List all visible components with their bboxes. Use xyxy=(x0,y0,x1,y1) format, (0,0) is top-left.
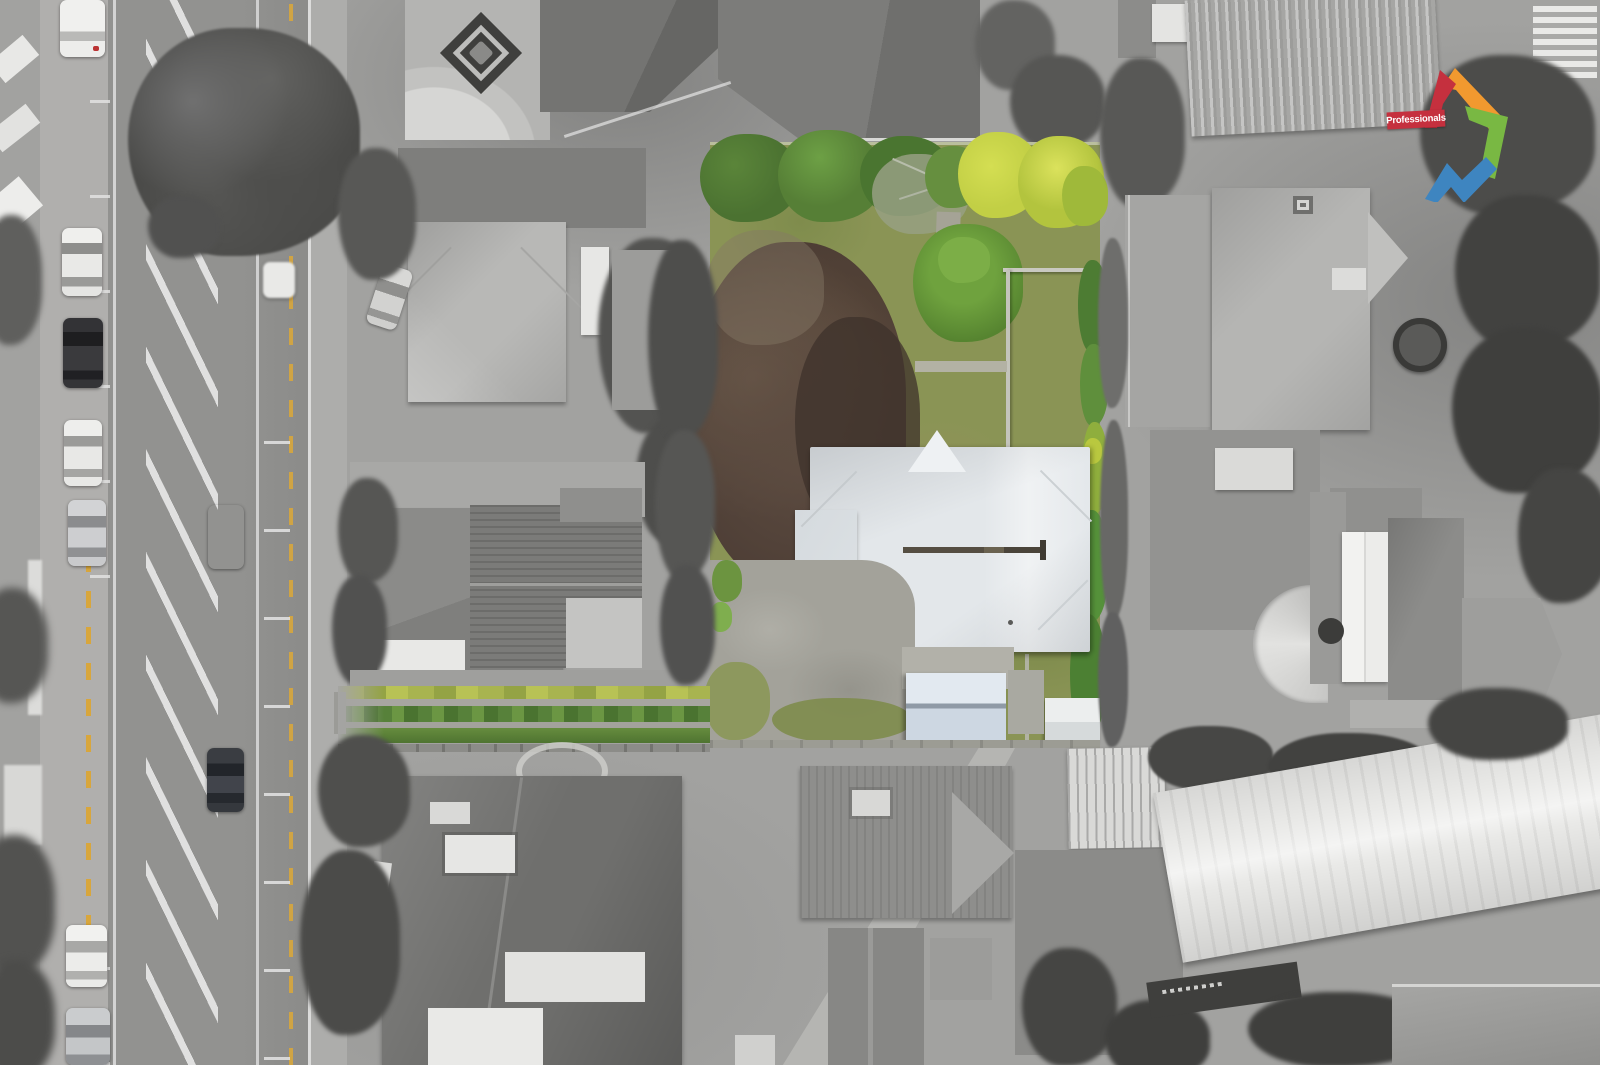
tree-mid-5 xyxy=(332,575,387,685)
shed-small-top xyxy=(1118,0,1156,58)
small-outbuilding-roof xyxy=(1045,698,1100,742)
patio-east xyxy=(1008,670,1044,734)
tree-east-3 xyxy=(1518,468,1600,603)
roof-vent-2 xyxy=(1008,620,1013,625)
trampoline xyxy=(1393,318,1447,372)
neighbor-house-f-roof-left xyxy=(1310,492,1346,684)
fence-east-front xyxy=(1128,195,1130,427)
s-roof2-ridge xyxy=(868,928,873,1065)
tree-east-top-2 xyxy=(1100,58,1185,208)
f-white-gable xyxy=(1342,532,1388,682)
concrete-path xyxy=(915,361,1007,372)
neighbor-house-e-roof xyxy=(1212,188,1370,430)
tree-south-1 xyxy=(318,735,410,847)
neighbor-house-west-ridge xyxy=(470,583,642,586)
parked-car-5 xyxy=(68,500,106,566)
yellow-shrub-3 xyxy=(1062,166,1108,226)
parked-car-1-taillight xyxy=(93,46,99,51)
commercial-roof-b xyxy=(718,0,980,141)
neighbor-patio-west xyxy=(377,640,465,674)
highlighted-property xyxy=(710,142,1100,748)
neighbor-house-f-roof-right xyxy=(1388,518,1464,714)
neighbor-house-se-roof xyxy=(1392,984,1600,1065)
tree-west-1 xyxy=(0,215,42,345)
parked-car-7 xyxy=(66,1008,110,1065)
driveway-hedge-strip xyxy=(338,686,710,746)
hedge-gray-boundary xyxy=(1098,238,1128,408)
tree-south-2 xyxy=(300,850,400,1035)
yellow-dashed-line-west-kerb xyxy=(86,562,91,932)
tree-mid-1 xyxy=(338,148,416,280)
professionals-logo: Professionals xyxy=(1385,62,1515,202)
roof-ridge-cap xyxy=(1040,540,1046,560)
parked-car-4 xyxy=(64,420,102,486)
paving-north xyxy=(398,148,646,228)
parked-car-2 xyxy=(62,228,102,296)
garden-fence-vertical xyxy=(1006,270,1010,450)
logo-star-blue-arm xyxy=(1425,157,1497,202)
sw-patio-1 xyxy=(505,952,645,1002)
sw-skylight-2 xyxy=(430,802,470,824)
tree-east-4 xyxy=(1428,688,1568,760)
parked-car-6 xyxy=(66,925,107,987)
parking-bay-marks-west xyxy=(90,48,110,578)
hedge-gray-boundary-3 xyxy=(1098,612,1128,747)
white-bit-south xyxy=(735,1035,775,1065)
orange-car xyxy=(208,505,244,569)
tree-mid-4 xyxy=(338,478,398,583)
strip-grass-lower xyxy=(338,728,710,743)
tree-south-3 xyxy=(1022,948,1117,1065)
tree-gap-3 xyxy=(660,565,715,685)
neighbor-house-s-roof2 xyxy=(828,928,924,1065)
sw-patio-2 xyxy=(428,1008,543,1065)
parked-car-3 xyxy=(63,318,103,388)
building-corner-northwest xyxy=(0,35,39,83)
commercial-roof-a xyxy=(540,0,736,112)
roof-ridge xyxy=(903,547,1043,553)
building-corner-northwest-2 xyxy=(0,104,40,152)
copper-beech-sparse xyxy=(706,230,824,345)
s-skylight xyxy=(852,790,890,816)
tree-gap-1 xyxy=(648,240,718,440)
tree-east-1 xyxy=(1455,195,1600,350)
driveway-grass-1 xyxy=(772,698,910,742)
lawn-east-front xyxy=(1125,195,1210,427)
dark-car xyxy=(207,748,244,812)
garden-shed-roof xyxy=(906,673,1006,741)
car-under-tree xyxy=(263,262,295,298)
tree-gap-2 xyxy=(655,430,715,580)
strip-grass-verge xyxy=(338,686,710,700)
green-tree-highlight xyxy=(938,237,990,283)
white-garage-east xyxy=(1215,448,1293,490)
yard-south xyxy=(930,938,992,1000)
e-roof-chimney xyxy=(1293,196,1313,214)
aerial-photo: Professionals xyxy=(0,0,1600,1065)
hedge-gray-boundary-2 xyxy=(1100,420,1128,620)
logo-star-icon xyxy=(1385,62,1515,202)
neighbor-house-west-step xyxy=(560,488,642,522)
boundary-fence-bottom xyxy=(710,740,1100,748)
tree-east-2 xyxy=(1452,328,1600,493)
lane-line-west xyxy=(113,0,116,1065)
strip-hedge xyxy=(338,706,710,723)
e-roof-dormer xyxy=(1332,268,1366,290)
e-roof-point xyxy=(1368,212,1408,304)
driveway-bush-1 xyxy=(712,560,742,602)
street-tree-lump xyxy=(148,196,220,258)
f-spa-tub xyxy=(1318,618,1344,644)
parking-bay-marks-east xyxy=(264,440,290,1060)
neighbor-house-north-roof xyxy=(408,222,566,402)
driveway-grass-2 xyxy=(704,662,770,740)
logo-banner: Professionals xyxy=(1387,109,1446,129)
neighbor-wall-west xyxy=(566,598,642,668)
logo-brand-text: Professionals xyxy=(1386,112,1446,126)
sw-skylight-1 xyxy=(445,835,515,873)
white-patch-west xyxy=(4,765,42,845)
